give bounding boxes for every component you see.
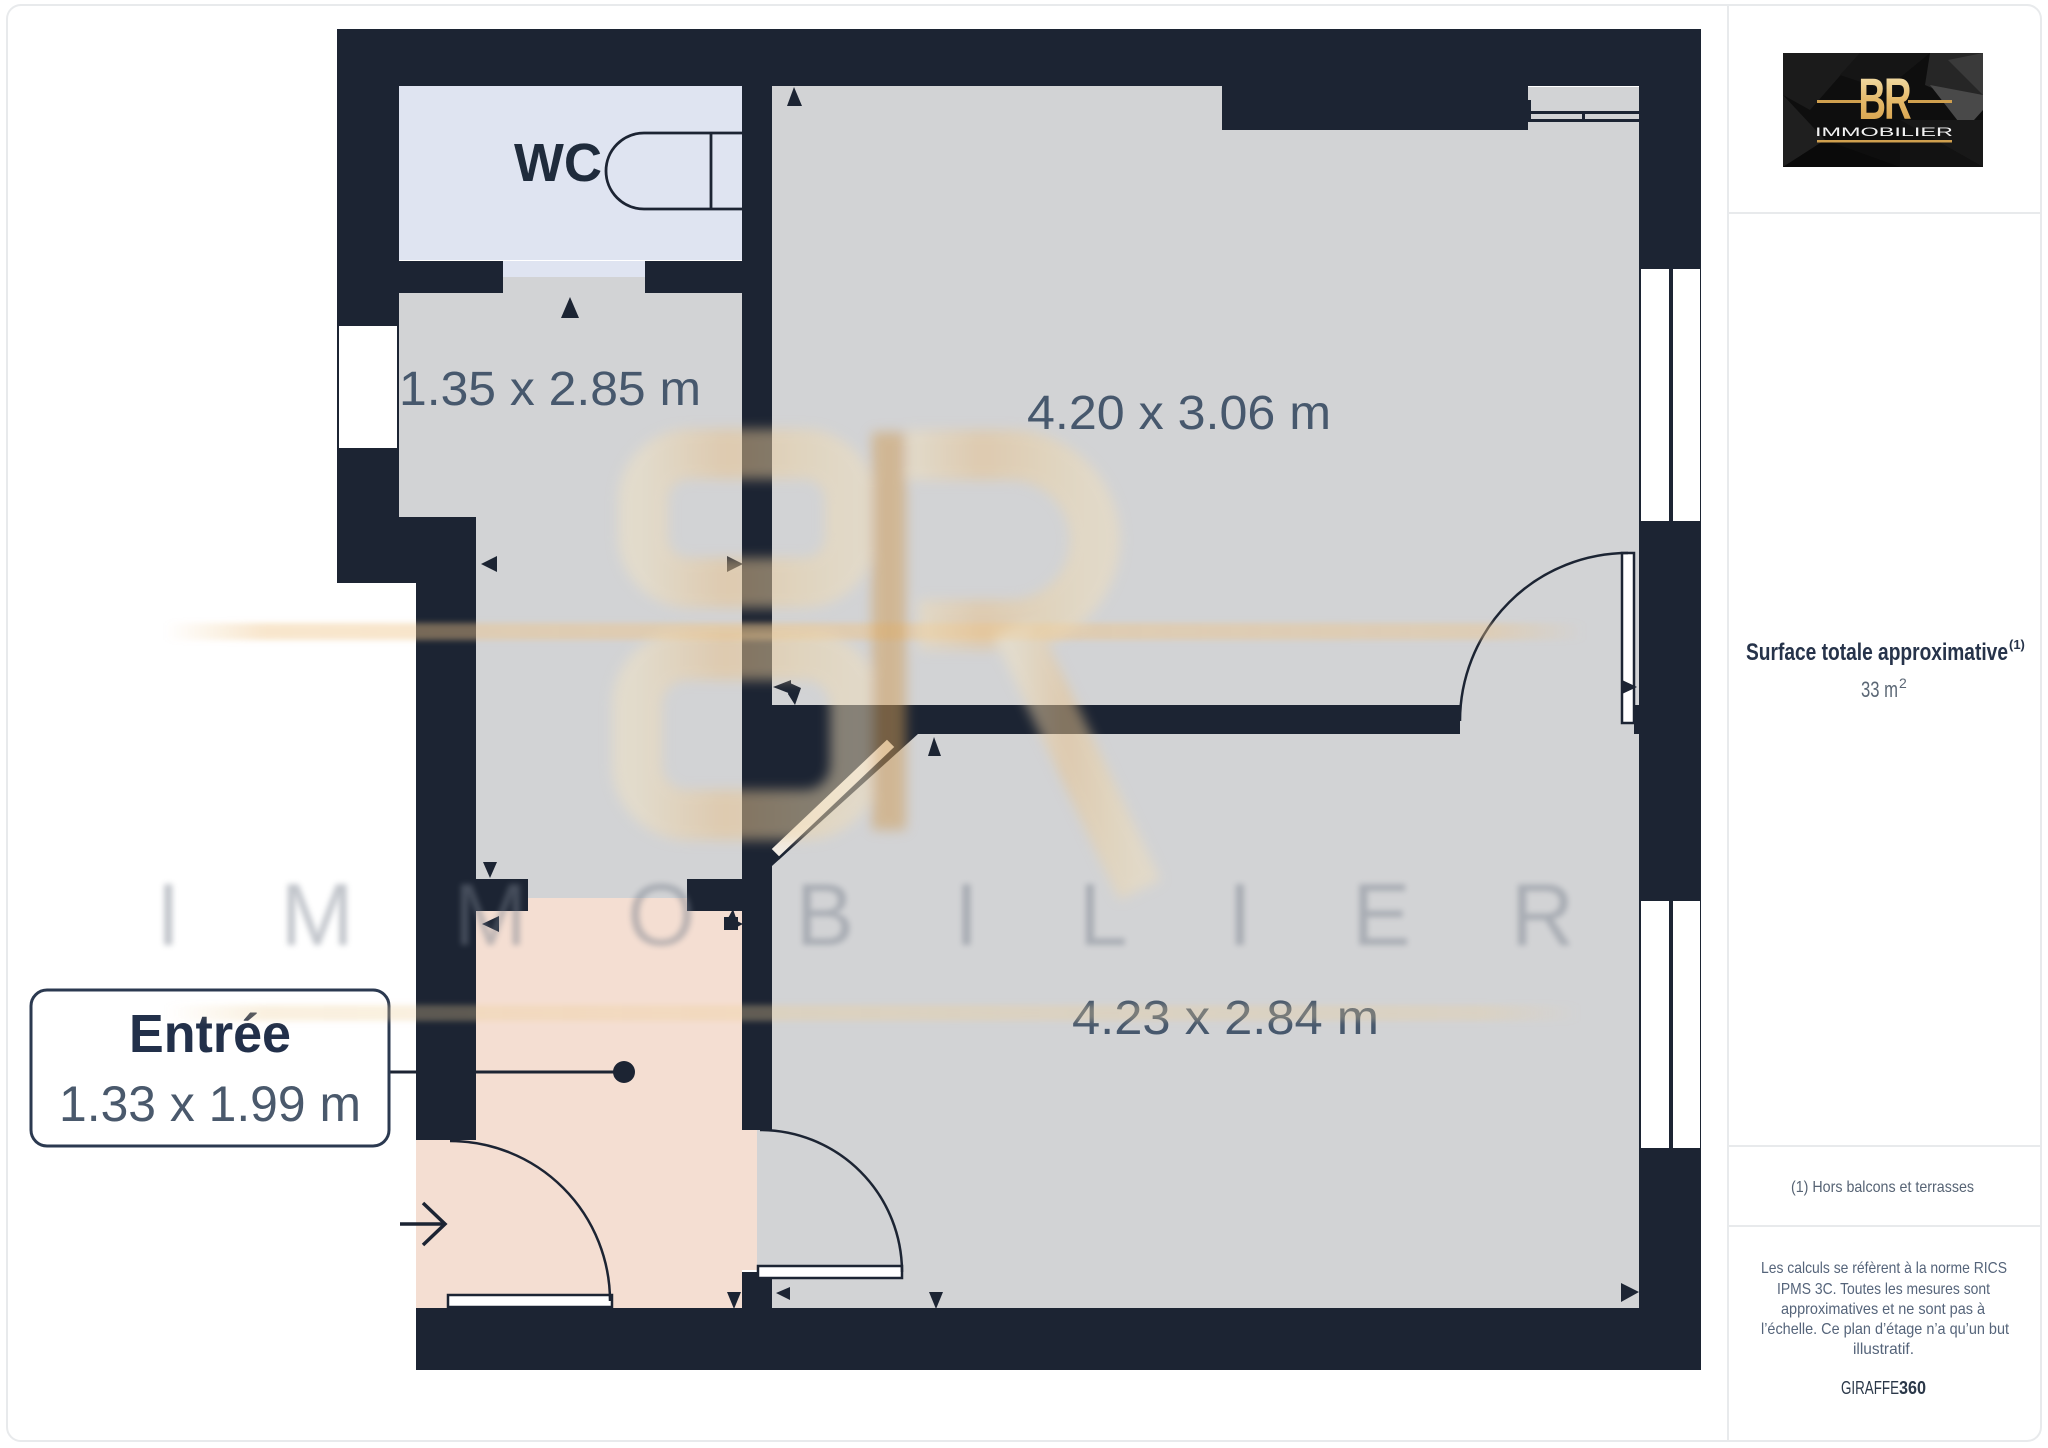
svg-text:BR: BR [1858,68,1911,132]
svg-text:Les calculs se réfèrent à la n: Les calculs se réfèrent à la norme RICS [1761,1260,2007,1277]
svg-text:360: 360 [1899,1378,1926,1398]
svg-text:illustratif.: illustratif. [1853,1341,1914,1358]
svg-text:2: 2 [1899,675,1907,691]
svg-text:1.35 x 2.85 m: 1.35 x 2.85 m [399,363,701,416]
svg-text:IMMOBILIER: IMMOBILIER [156,865,1674,964]
svg-text:GIRAFFE: GIRAFFE [1841,1378,1899,1398]
svg-text:4.20 x 3.06 m: 4.20 x 3.06 m [1027,387,1331,440]
svg-text:IMMOBILIER: IMMOBILIER [1815,125,1954,139]
svg-text:(1) Hors balcons et terrasses: (1) Hors balcons et terrasses [1791,1179,1974,1196]
svg-text:1.33 x 1.99 m: 1.33 x 1.99 m [59,1076,361,1132]
svg-text:IPMS 3C. Toutes les mesures so: IPMS 3C. Toutes les mesures sont [1777,1281,1990,1298]
svg-text:Surface totale approximative: Surface totale approximative [1746,639,2008,666]
svg-text:WC: WC [514,133,602,193]
svg-text:(1): (1) [2009,637,2025,652]
svg-text:approximatives et ne sont pas: approximatives et ne sont pas à [1781,1301,1985,1318]
svg-text:33 m: 33 m [1861,677,1898,702]
svg-text:l’échelle. Ce plan d’étage n’a: l’échelle. Ce plan d’étage n’a qu’un but [1761,1321,2009,1338]
